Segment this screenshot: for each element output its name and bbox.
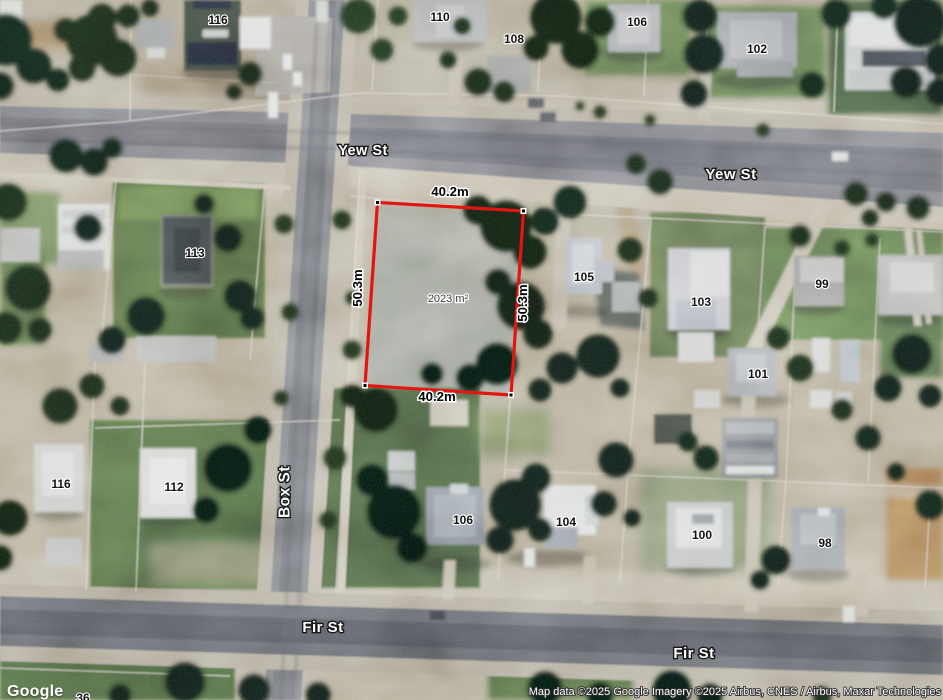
svg-text:99: 99 — [815, 277, 829, 291]
svg-text:Fir St: Fir St — [302, 619, 343, 636]
svg-text:100: 100 — [692, 528, 712, 542]
svg-text:113: 113 — [185, 246, 205, 260]
svg-text:Yew St: Yew St — [705, 166, 756, 183]
svg-text:98: 98 — [818, 536, 832, 550]
svg-text:103: 103 — [691, 295, 711, 309]
svg-text:Yew St: Yew St — [338, 143, 388, 159]
svg-text:Fir St: Fir St — [673, 645, 714, 662]
svg-text:116: 116 — [208, 13, 228, 27]
svg-text:Google: Google — [7, 683, 63, 700]
svg-text:2023 m²: 2023 m² — [428, 293, 469, 305]
svg-text:40.2m: 40.2m — [431, 184, 468, 199]
svg-text:36: 36 — [76, 691, 90, 700]
svg-text:Box St: Box St — [277, 466, 294, 518]
svg-text:102: 102 — [747, 42, 767, 56]
svg-text:105: 105 — [574, 270, 594, 284]
svg-text:112: 112 — [164, 480, 184, 494]
svg-text:101: 101 — [748, 367, 768, 381]
svg-text:40.2m: 40.2m — [418, 389, 455, 404]
svg-text:Map data ©2025 Google Imagery: Map data ©2025 Google Imagery ©2025 Airb… — [529, 686, 942, 698]
svg-text:110: 110 — [430, 10, 450, 24]
svg-text:116: 116 — [51, 477, 71, 491]
svg-text:106: 106 — [453, 513, 473, 527]
svg-text:104: 104 — [556, 515, 576, 529]
svg-text:50.3m: 50.3m — [350, 269, 365, 306]
svg-text:108: 108 — [504, 32, 524, 46]
svg-text:50.3m: 50.3m — [515, 284, 530, 321]
svg-text:106: 106 — [627, 15, 647, 29]
